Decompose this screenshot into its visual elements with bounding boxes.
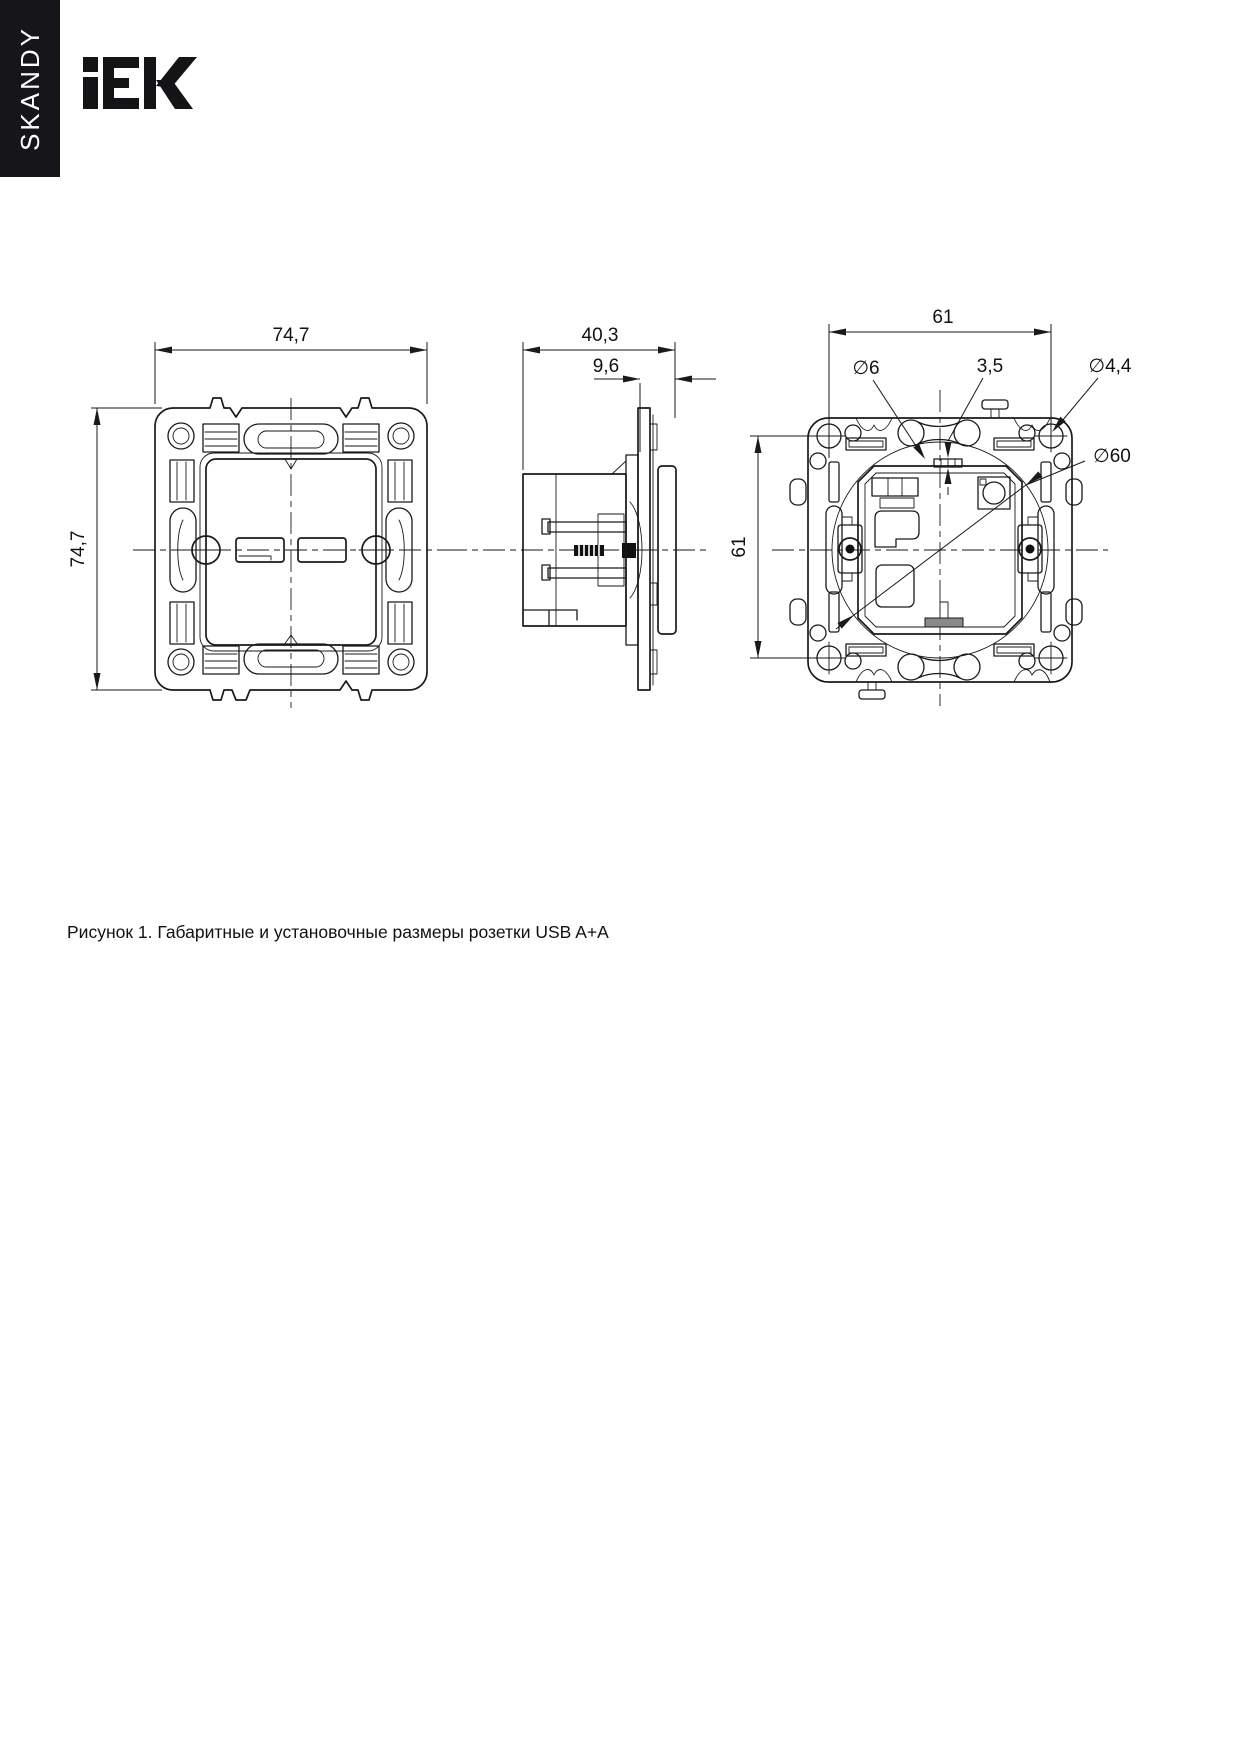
side-body: [523, 461, 626, 626]
back-box-diameter-label: ∅60: [1093, 446, 1131, 467]
back-slot-diameter-callout: ∅6: [852, 358, 925, 459]
front-width-dimension: 74,7: [155, 325, 427, 404]
front-height-label: 74,7: [68, 531, 89, 568]
back-view: 61 61 ∅6 3,5: [729, 307, 1132, 706]
back-tab-width-label: 3,5: [977, 356, 1003, 377]
figure-caption: Рисунок 1. Габаритные и установочные раз…: [67, 922, 609, 943]
back-mount-height-label: 61: [729, 536, 750, 557]
dimension-drawing: 74,7 74,7: [0, 0, 1239, 780]
side-depth-label: 40,3: [582, 325, 619, 346]
back-slot-diameter-label: ∅6: [852, 358, 879, 379]
side-protrusion-dimension: 9,6: [593, 356, 716, 452]
datasheet-page: SKANDY IEK: [0, 0, 1239, 1746]
side-claw-mechanism: [542, 502, 642, 598]
back-screw-hole-label: ∅4,4: [1089, 356, 1132, 377]
front-view: 74,7 74,7: [68, 325, 449, 708]
back-mount-width-label: 61: [932, 307, 953, 328]
back-screw-hole-callout: ∅4,4: [1052, 356, 1132, 432]
front-width-label: 74,7: [273, 325, 310, 346]
side-protrusion-label: 9,6: [593, 356, 619, 377]
front-height-dimension: 74,7: [68, 408, 162, 690]
side-view: 40,3 9,6: [445, 325, 716, 690]
side-depth-dimension: 40,3: [523, 325, 675, 470]
back-tab-width-callout: 3,5: [945, 356, 1004, 495]
